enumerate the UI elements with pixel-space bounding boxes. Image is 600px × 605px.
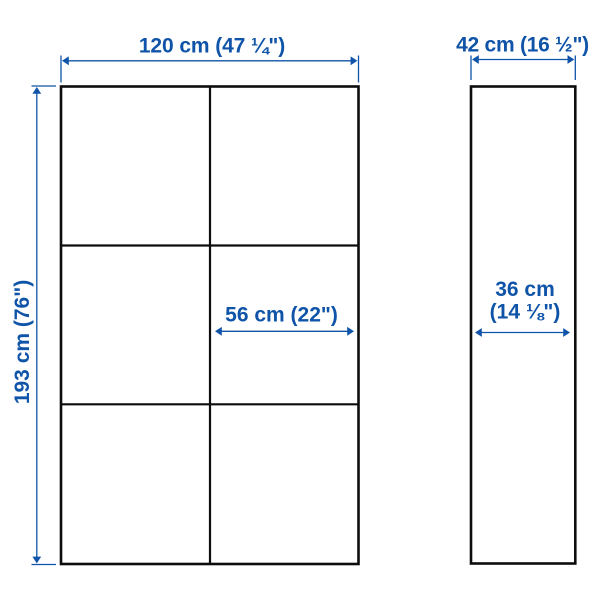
- svg-text:193 cm (76"): 193 cm (76"): [11, 280, 34, 404]
- svg-text:(14 ⅛"): (14 ⅛"): [490, 301, 561, 324]
- svg-text:36 cm: 36 cm: [495, 278, 555, 301]
- svg-text:42 cm (16 ½"): 42 cm (16 ½"): [456, 34, 589, 57]
- svg-text:120 cm (47 ¼"): 120 cm (47 ¼"): [139, 35, 285, 58]
- svg-text:56 cm (22"): 56 cm (22"): [225, 304, 338, 327]
